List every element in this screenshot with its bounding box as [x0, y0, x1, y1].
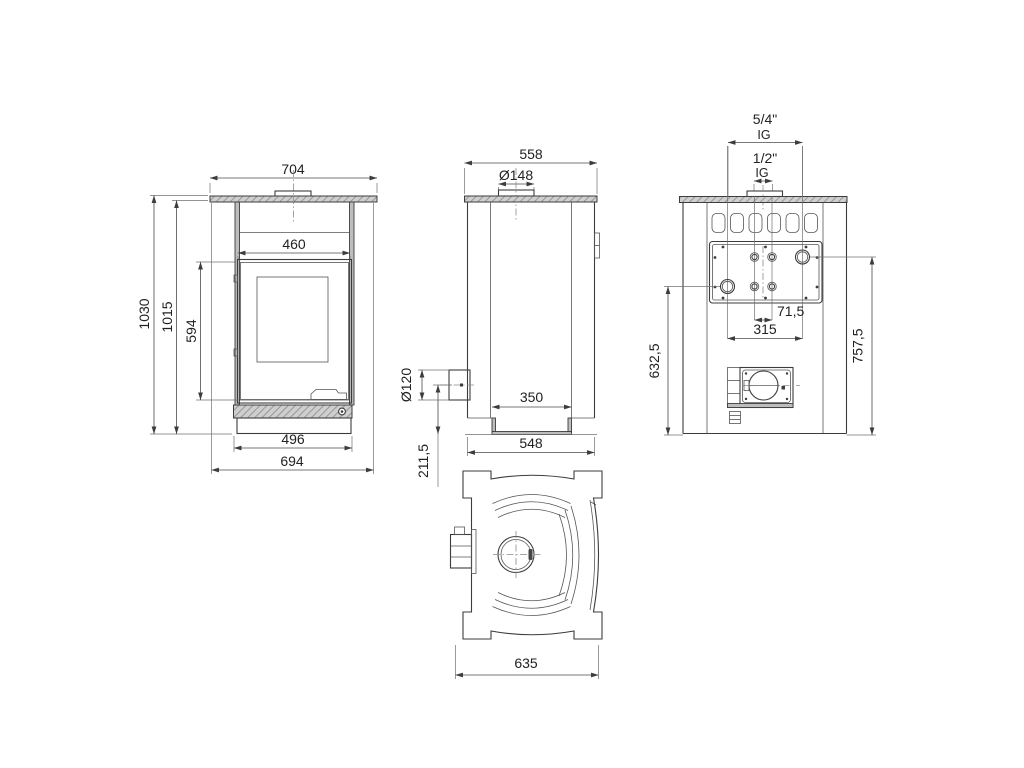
dim-front-height-body: 1015: [159, 301, 175, 332]
dim-front-door-height: 594: [183, 319, 199, 343]
dim-side-depth-bottom: 548: [519, 435, 543, 451]
dim-front-door-width: 460: [282, 236, 306, 252]
dim-rear-height-left: 632,5: [646, 343, 662, 378]
plinth-rear: [568, 418, 572, 432]
dim-top-width: 635: [514, 655, 538, 671]
dim-side-inner-depth: 350: [520, 389, 544, 405]
dim-rear-fitting-large: 5/4": [753, 111, 777, 127]
dim-front-height-total: 1030: [136, 298, 152, 329]
rear-flue-stub: [747, 191, 783, 197]
drawing-canvas: 704 460 496 694: [0, 0, 1024, 768]
plinth-front: [492, 418, 496, 432]
dim-rear-fitting-large-thread: IG: [757, 128, 770, 142]
dim-rear-height-right: 757,5: [850, 328, 866, 363]
dim-rear-small-spacing: 71,5: [777, 303, 804, 319]
flue-latch: [529, 549, 533, 560]
technical-drawing: 704 460 496 694: [0, 0, 1024, 768]
dim-front-width-bottom: 694: [280, 453, 304, 469]
dim-rear-large-spacing: 315: [753, 321, 777, 337]
dim-side-outlet-height: 211,5: [415, 444, 431, 478]
dim-rear-fitting-small-thread: IG: [755, 166, 768, 180]
dim-side-outlet-diameter: Ø120: [398, 368, 414, 402]
rear-top-plate: [680, 197, 848, 203]
dim-side-depth-top: 558: [519, 146, 543, 162]
dim-front-base-width: 496: [281, 431, 305, 447]
base-band: [234, 405, 353, 418]
side-top-plate: [465, 196, 598, 202]
dim-rear-fitting-small: 1/2": [753, 150, 777, 166]
